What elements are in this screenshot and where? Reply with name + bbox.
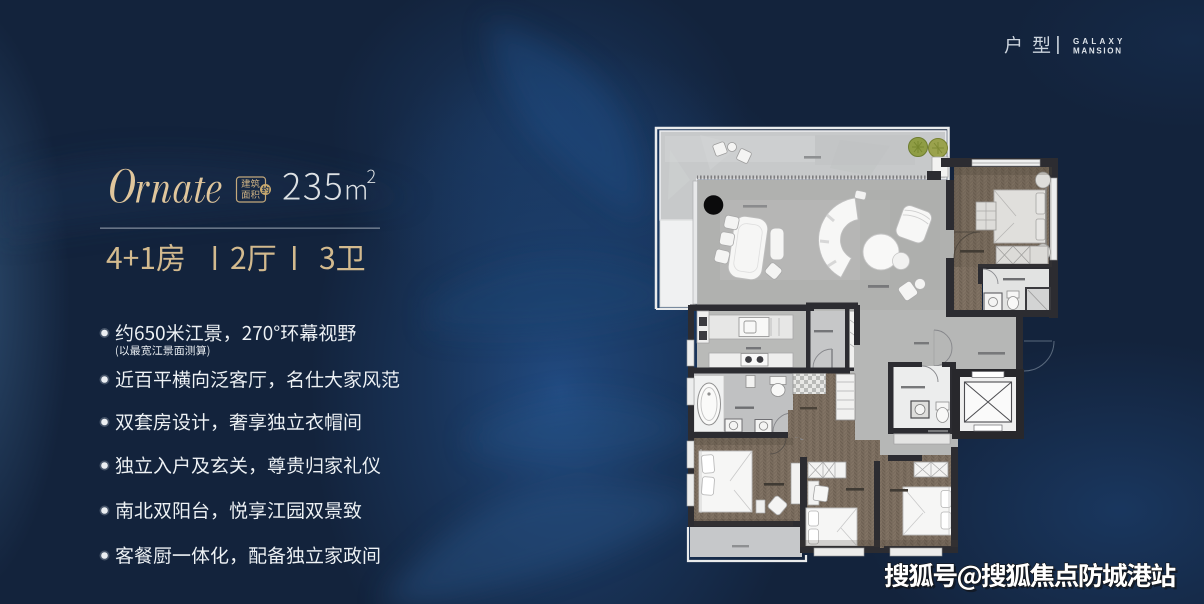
svg-text:GALAXY: GALAXY <box>1073 37 1126 46</box>
svg-text:MANSION: MANSION <box>1073 47 1123 56</box>
